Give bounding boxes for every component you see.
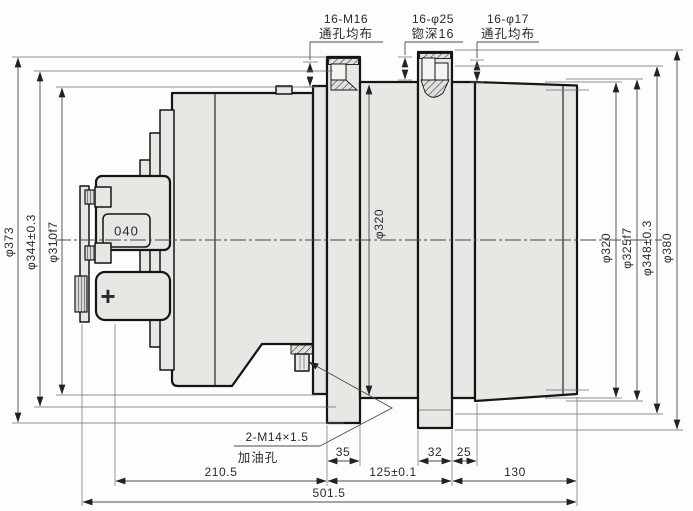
dim-right-phi320-label: φ320: [599, 233, 613, 263]
callout2-note: 锪深16: [412, 26, 455, 41]
dim-501-5-label: 501.5: [312, 486, 345, 500]
main-housing: [172, 93, 313, 386]
dim-25: 25: [453, 445, 476, 461]
callout3-note: 通孔均布: [481, 27, 535, 41]
oil-plug: [291, 345, 313, 371]
m16-tapped-hole: [331, 64, 346, 80]
dim-32: 32: [419, 445, 451, 461]
dim-210-5: 210.5: [116, 465, 326, 481]
dim-phi344-label: φ344±0.3: [24, 214, 38, 270]
oil-callout-title: 2-M14×1.5: [245, 430, 308, 444]
dim-35: 35: [328, 445, 359, 461]
callout1-note: 通孔均布: [319, 27, 373, 41]
through-hole: [435, 63, 448, 80]
middle-bolt: [85, 243, 111, 263]
dim-phi325f7-label: φ325f7: [620, 227, 634, 268]
part-view: 040 +: [55, 52, 662, 428]
dim-phi380-label: φ380: [660, 233, 674, 263]
knurled-fitting: [75, 276, 87, 312]
plug-cross-marking: +: [100, 281, 115, 311]
dim-phi310f7-label: φ310f7: [46, 221, 60, 262]
oil-callout-note: 加油孔: [238, 451, 279, 465]
callout2-title: 16-φ25: [412, 12, 454, 26]
right-drum: [475, 82, 577, 401]
dim-501-5: 501.5: [83, 486, 576, 502]
callout3-title: 16-φ17: [487, 12, 529, 26]
dim-phi348-label: φ348±0.3: [640, 220, 654, 276]
part-code-label: 040: [114, 224, 139, 239]
drawing-canvas: 040 +: [0, 0, 693, 511]
dim-25-label: 25: [457, 445, 472, 459]
callout1-title: 16-M16: [324, 12, 368, 26]
counterbore-hole: [422, 58, 435, 80]
dim-center-phi320-label: φ320: [372, 209, 386, 239]
dim-125: 125±0.1: [328, 465, 451, 481]
callout-16-phi17: 16-φ17 通孔均布: [470, 12, 539, 82]
engineering-drawing: 040 +: [0, 0, 693, 511]
dim-32-label: 32: [428, 445, 443, 459]
dim-phi373-label: φ373: [2, 227, 16, 257]
dim-130-label: 130: [504, 465, 526, 479]
dim-125-label: 125±0.1: [369, 465, 417, 479]
top-bolt: [85, 187, 111, 207]
dim-130: 130: [453, 465, 576, 481]
dim-210-5-label: 210.5: [204, 465, 237, 479]
dim-35-label: 35: [336, 445, 351, 459]
